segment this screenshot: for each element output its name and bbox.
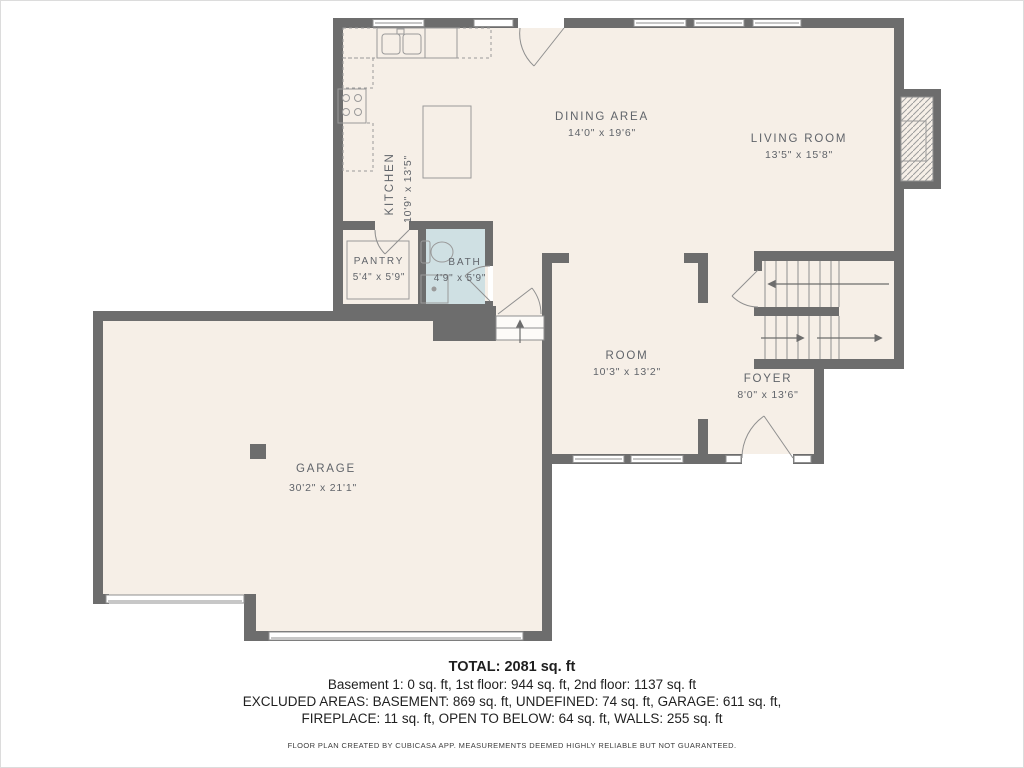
- foyer-dims: 8'0" x 13'6": [737, 389, 798, 401]
- garage-door-main: [269, 632, 523, 640]
- living-label: LIVING ROOM: [751, 133, 847, 145]
- fireplace: [894, 89, 941, 189]
- bath-label: BATH: [448, 257, 481, 268]
- kitchen-label: KITCHEN: [384, 152, 396, 215]
- floor-areas-line: Basement 1: 0 sq. ft, 1st floor: 944 sq.…: [1, 676, 1023, 693]
- entry-steps: [496, 316, 544, 343]
- pantry-dims: 5'4" x 5'9": [353, 272, 406, 283]
- floor-plan-drawing: KITCHEN 10'9" x 13'5" DINING AREA 14'0" …: [1, 1, 1024, 768]
- floor-plan-page: KITCHEN 10'9" x 13'5" DINING AREA 14'0" …: [0, 0, 1024, 768]
- excluded-areas-line-2: FIREPLACE: 11 sq. ft, OPEN TO BELOW: 64 …: [1, 710, 1023, 727]
- pantry-label: PANTRY: [354, 256, 404, 267]
- garage-post: [250, 444, 266, 459]
- kitchen-dims: 10'9" x 13'5": [402, 155, 414, 223]
- total-area: TOTAL: 2081 sq. ft: [1, 659, 1023, 676]
- garage-door-side: [106, 595, 244, 603]
- foyer-label: FOYER: [744, 373, 793, 385]
- dining-dims: 14'0" x 19'6": [568, 127, 636, 139]
- disclaimer: FLOOR PLAN CREATED BY CUBICASA APP. MEAS…: [1, 741, 1023, 750]
- area-summary: TOTAL: 2081 sq. ft Basement 1: 0 sq. ft,…: [1, 659, 1023, 750]
- garage-label: GARAGE: [296, 463, 356, 475]
- room-label: ROOM: [606, 350, 649, 362]
- room-dims: 10'3" x 13'2": [593, 366, 661, 378]
- excluded-areas-line-1: EXCLUDED AREAS: BASEMENT: 869 sq. ft, UN…: [1, 693, 1023, 710]
- bath-dims: 4'9" x 5'9": [434, 273, 487, 284]
- dining-label: DINING AREA: [555, 111, 649, 123]
- living-dims: 13'5" x 15'8": [765, 149, 833, 161]
- garage-dims: 30'2" x 21'1": [289, 482, 357, 494]
